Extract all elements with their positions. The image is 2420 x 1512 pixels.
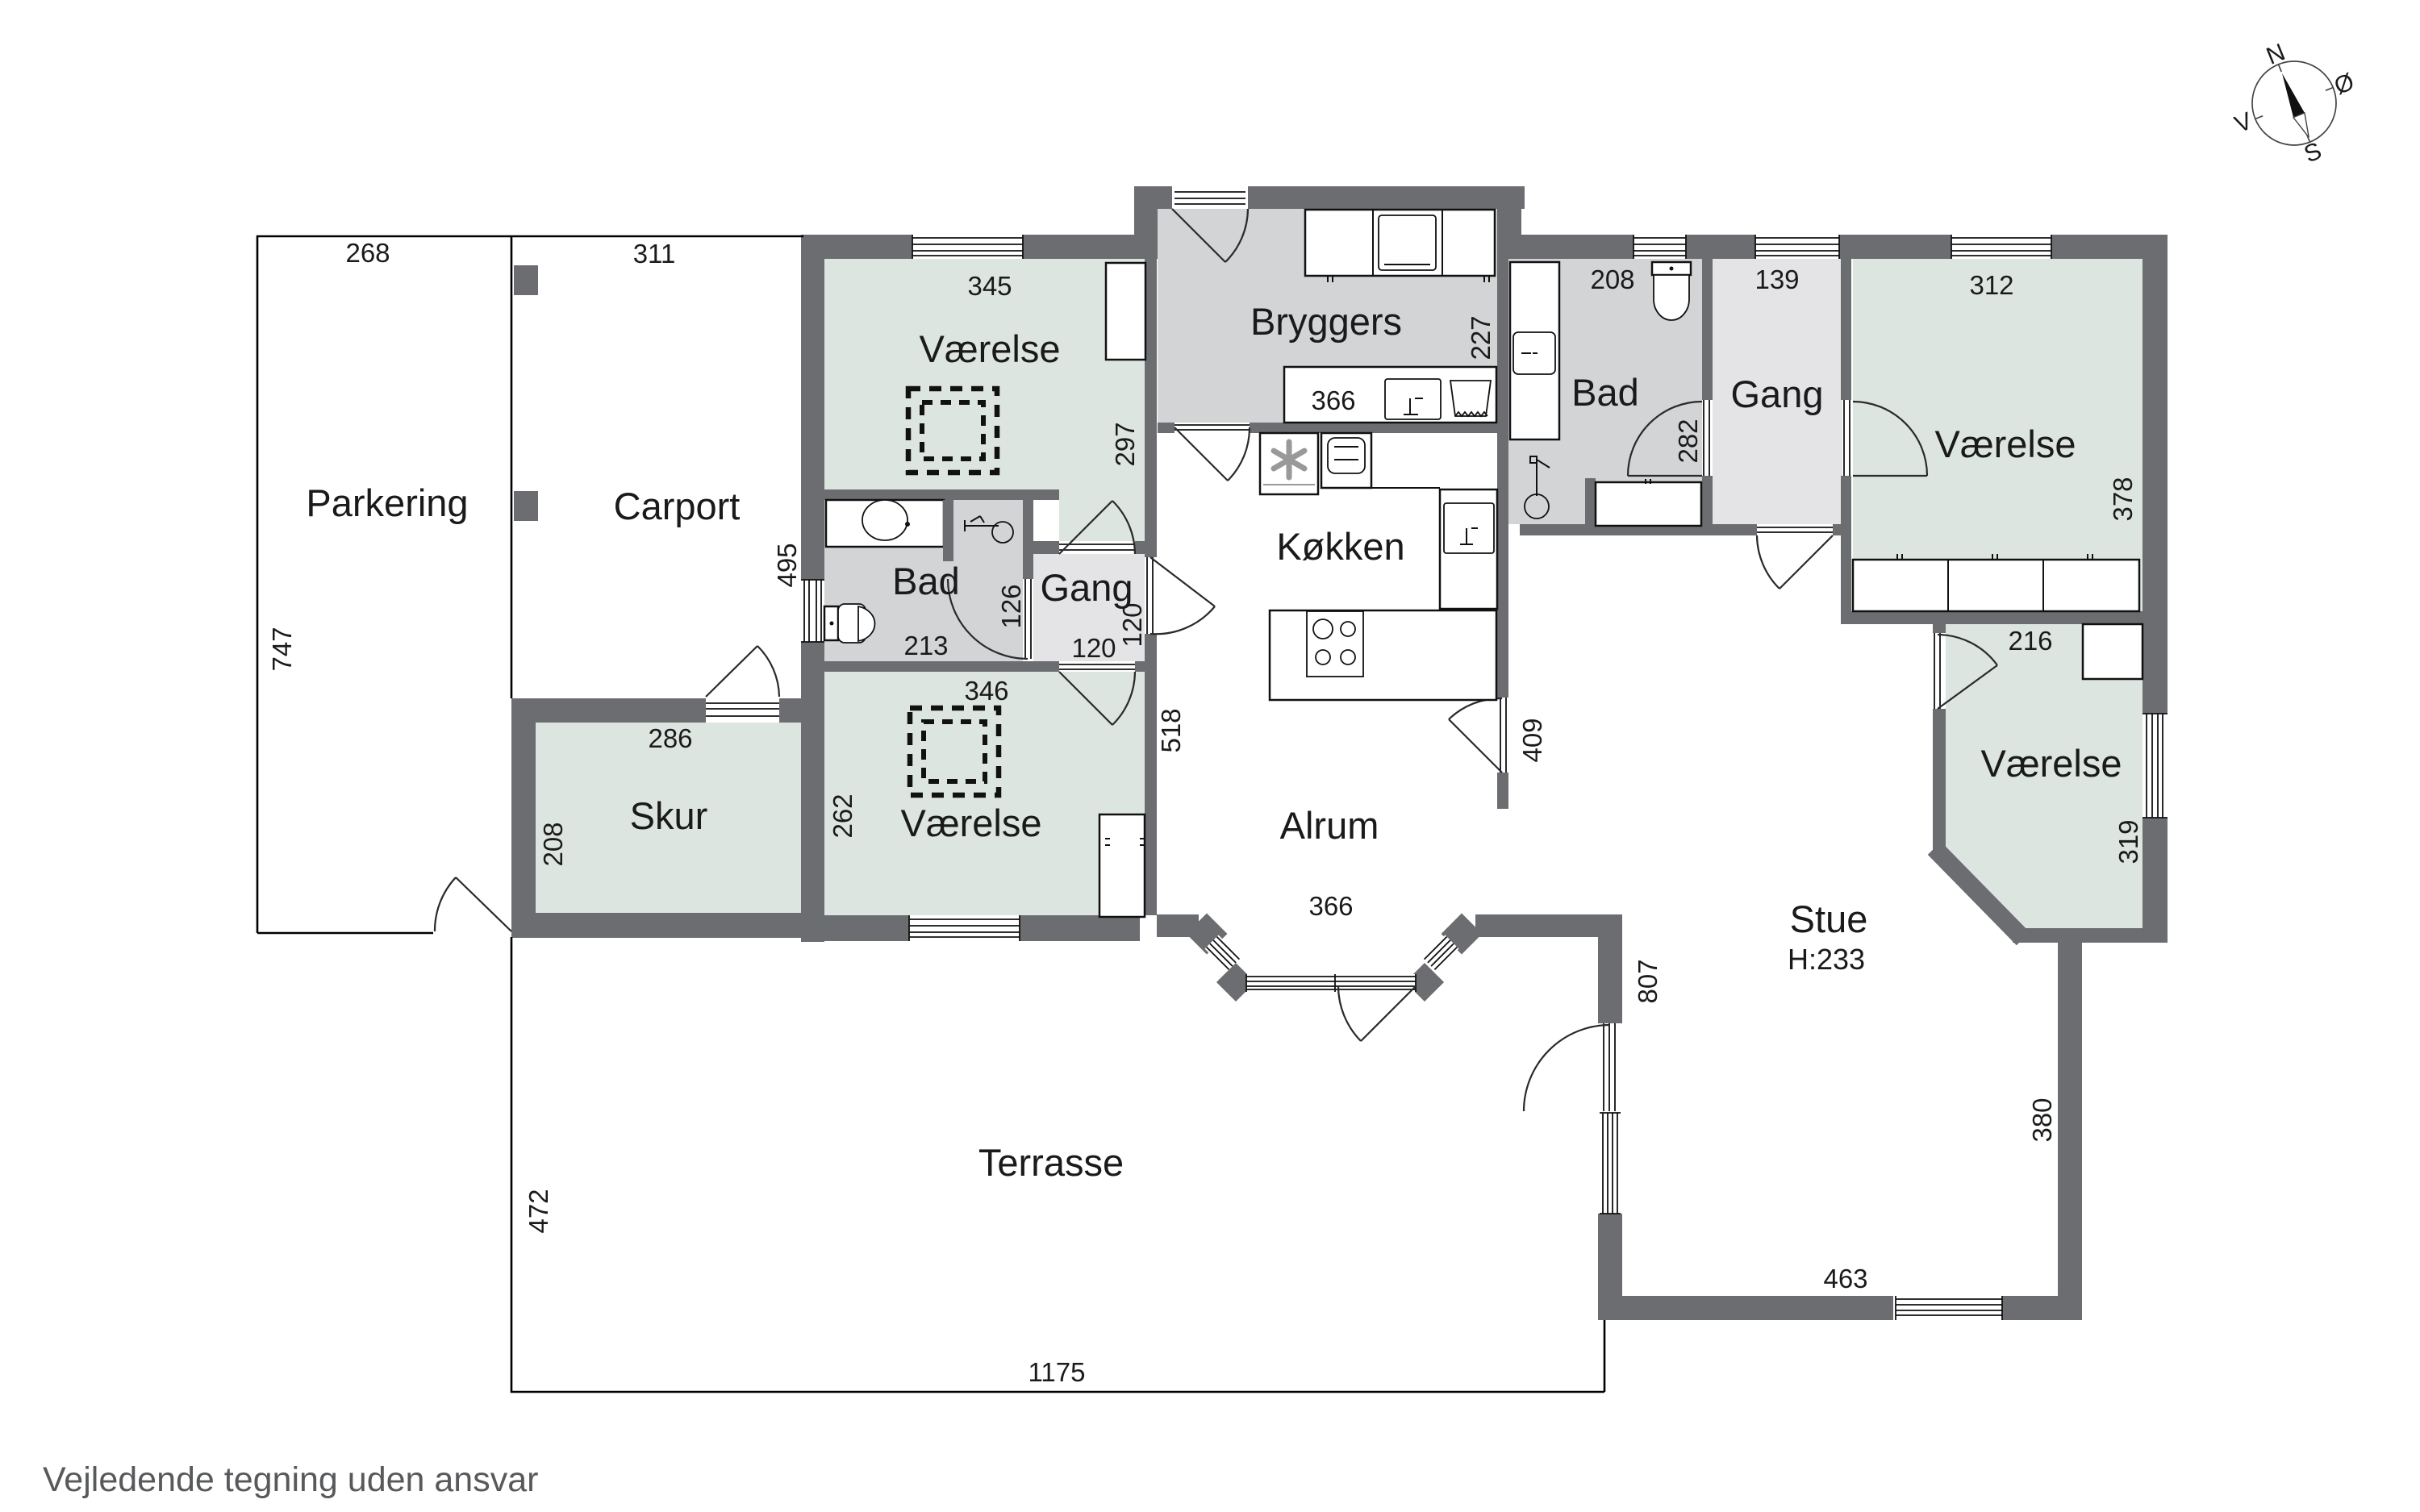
svg-text:518: 518 (1156, 708, 1186, 752)
svg-text:495: 495 (772, 543, 802, 587)
svg-text:346: 346 (964, 676, 1008, 706)
svg-text:Værelse: Værelse (1934, 423, 2076, 465)
svg-text:Gang: Gang (1731, 373, 1824, 415)
svg-text:213: 213 (903, 631, 948, 660)
svg-text:Carport: Carport (614, 485, 741, 527)
svg-text:Køkken: Køkken (1276, 525, 1404, 568)
svg-text:1175: 1175 (1028, 1357, 1086, 1387)
svg-text:807: 807 (1633, 959, 1663, 1003)
svg-text:282: 282 (1673, 419, 1703, 463)
svg-text:Parkering: Parkering (306, 481, 468, 524)
svg-text:120: 120 (1117, 602, 1147, 647)
svg-text:227: 227 (1466, 315, 1496, 360)
svg-text:Bad: Bad (1571, 371, 1639, 414)
svg-text:208: 208 (538, 822, 568, 866)
svg-text:Stue: Stue (1790, 898, 1868, 940)
svg-text:311: 311 (633, 239, 676, 269)
svg-text:Skur: Skur (630, 794, 708, 837)
svg-text:216: 216 (2008, 626, 2052, 656)
svg-text:208: 208 (1590, 264, 1634, 294)
svg-text:Alrum: Alrum (1280, 804, 1379, 847)
svg-text:262: 262 (828, 793, 857, 838)
svg-text:Bryggers: Bryggers (1250, 300, 1402, 343)
svg-text:268: 268 (345, 238, 390, 268)
svg-text:Værelse: Værelse (919, 327, 1060, 370)
svg-text:297: 297 (1110, 422, 1140, 466)
svg-text:139: 139 (1754, 264, 1799, 294)
svg-text:463: 463 (1823, 1264, 1867, 1293)
svg-text:472: 472 (524, 1189, 553, 1233)
svg-text:Bad: Bad (892, 560, 960, 602)
svg-text:366: 366 (1311, 385, 1355, 415)
svg-text:Terrasse: Terrasse (978, 1141, 1124, 1184)
svg-text:Gang: Gang (1041, 566, 1133, 609)
svg-text:378: 378 (2108, 477, 2138, 521)
svg-text:126: 126 (996, 584, 1026, 628)
svg-text:286: 286 (648, 723, 692, 753)
svg-text:319: 319 (2113, 819, 2143, 864)
svg-text:312: 312 (1969, 270, 2013, 300)
svg-text:380: 380 (2027, 1098, 2057, 1142)
svg-text:Værelse: Værelse (900, 802, 1041, 844)
svg-text:Vejledende tegning uden ansvar: Vejledende tegning uden ansvar (43, 1460, 538, 1499)
svg-text:Værelse: Værelse (1980, 742, 2122, 785)
svg-text:409: 409 (1517, 718, 1547, 762)
svg-text:120: 120 (1071, 633, 1116, 663)
svg-text:345: 345 (967, 271, 1012, 301)
svg-text:747: 747 (267, 627, 297, 671)
svg-text:366: 366 (1308, 891, 1353, 921)
svg-text:H:233: H:233 (1788, 943, 1865, 976)
